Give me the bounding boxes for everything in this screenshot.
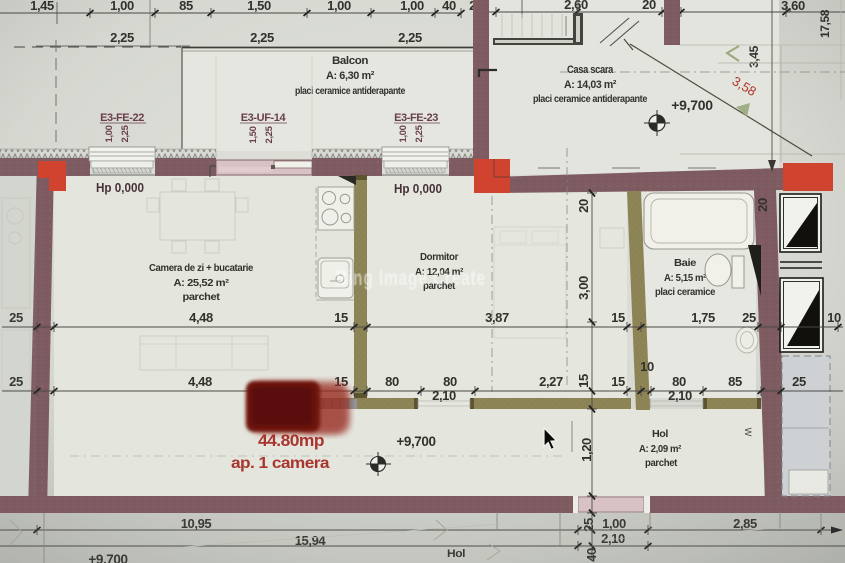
svg-text:15: 15 <box>334 310 348 325</box>
svg-text:2,25: 2,25 <box>414 124 425 142</box>
svg-text:Dormitor: Dormitor <box>420 251 458 263</box>
svg-text:1,45: 1,45 <box>30 0 54 13</box>
svg-text:1,00: 1,00 <box>398 125 409 142</box>
svg-text:w: w <box>742 427 756 437</box>
svg-text:ap. 1 camera: ap. 1 camera <box>231 455 330 472</box>
svg-text:44.80mp: 44.80mp <box>258 432 324 450</box>
svg-text:1,00: 1,00 <box>327 0 351 13</box>
svg-text:Bing Image Create: Bing Image Create <box>336 267 486 290</box>
svg-text:A: 25,52 m²: A: 25,52 m² <box>174 277 230 289</box>
svg-text:20: 20 <box>755 198 770 212</box>
svg-text:2,25: 2,25 <box>250 30 274 45</box>
svg-text:40: 40 <box>442 0 456 13</box>
svg-text:2,10: 2,10 <box>432 388 456 403</box>
svg-text:17,58: 17,58 <box>818 9 832 38</box>
svg-text:10: 10 <box>827 310 841 325</box>
svg-text:+9,700: +9,700 <box>671 97 713 113</box>
svg-text:Camera de zi + bucatarie: Camera de zi + bucatarie <box>149 262 254 274</box>
svg-text:A: 5,15 m²: A: 5,15 m² <box>664 272 707 284</box>
svg-text:placi ceramice: placi ceramice <box>655 286 715 298</box>
svg-text:20: 20 <box>642 0 656 12</box>
svg-text:Hp 0,000: Hp 0,000 <box>96 180 144 195</box>
svg-text:Casa scara: Casa scara <box>567 64 614 76</box>
svg-text:1,50: 1,50 <box>247 0 271 13</box>
svg-text:Hol: Hol <box>652 428 668 440</box>
svg-text:80: 80 <box>443 374 457 389</box>
svg-text:20: 20 <box>576 199 591 213</box>
svg-text:3,00: 3,00 <box>576 276 591 300</box>
svg-text:2,10: 2,10 <box>668 388 692 403</box>
svg-text:parchet: parchet <box>645 457 678 469</box>
svg-text:Baie: Baie <box>674 257 697 269</box>
svg-text:25: 25 <box>792 374 806 389</box>
svg-text:1,50: 1,50 <box>248 126 259 143</box>
svg-text:Hp 0,000: Hp 0,000 <box>394 181 442 196</box>
svg-text:80: 80 <box>385 374 399 389</box>
svg-text:+9,700: +9,700 <box>396 434 435 449</box>
svg-text:1,00: 1,00 <box>400 0 424 13</box>
svg-text:A: 14,03 m²: A: 14,03 m² <box>564 79 617 91</box>
svg-text:3,87: 3,87 <box>485 310 509 325</box>
svg-text:85: 85 <box>728 374 742 389</box>
svg-text:15: 15 <box>576 374 591 388</box>
svg-text:25: 25 <box>742 310 756 325</box>
svg-text:1,75: 1,75 <box>691 310 715 325</box>
svg-text:80: 80 <box>672 374 686 389</box>
svg-text:3,45: 3,45 <box>747 45 761 67</box>
svg-text:2,60: 2,60 <box>564 0 588 12</box>
svg-text:10: 10 <box>640 359 654 374</box>
svg-text:A: 2,09 m²: A: 2,09 m² <box>639 443 682 455</box>
svg-text:4,48: 4,48 <box>188 374 212 389</box>
svg-text:85: 85 <box>179 0 193 13</box>
svg-text:E3-UF-14: E3-UF-14 <box>241 112 287 124</box>
svg-text:A: 6,30 m²: A: 6,30 m² <box>326 70 375 82</box>
svg-text:parchet: parchet <box>183 291 221 303</box>
svg-text:placi ceramice antiderapante: placi ceramice antiderapante <box>533 94 648 105</box>
svg-text:2,25: 2,25 <box>120 124 131 142</box>
svg-text:15: 15 <box>611 374 625 389</box>
svg-text:4,48: 4,48 <box>189 310 213 325</box>
svg-text:E3-FE-22: E3-FE-22 <box>100 112 144 124</box>
svg-text:2,25: 2,25 <box>398 30 422 45</box>
svg-text:15: 15 <box>611 310 625 325</box>
svg-text:3,60: 3,60 <box>781 0 805 13</box>
svg-text:2,25: 2,25 <box>110 30 134 45</box>
svg-text:2,27: 2,27 <box>539 374 563 389</box>
svg-text:E3-FE-23: E3-FE-23 <box>394 112 438 124</box>
svg-text:placi ceramice antiderapante: placi ceramice antiderapante <box>295 86 406 97</box>
svg-text:2,25: 2,25 <box>264 125 275 143</box>
svg-text:1,00: 1,00 <box>104 125 115 142</box>
svg-text:1,00: 1,00 <box>110 0 134 13</box>
svg-text:Balcon: Balcon <box>332 55 369 67</box>
svg-text:1,20: 1,20 <box>579 438 594 462</box>
